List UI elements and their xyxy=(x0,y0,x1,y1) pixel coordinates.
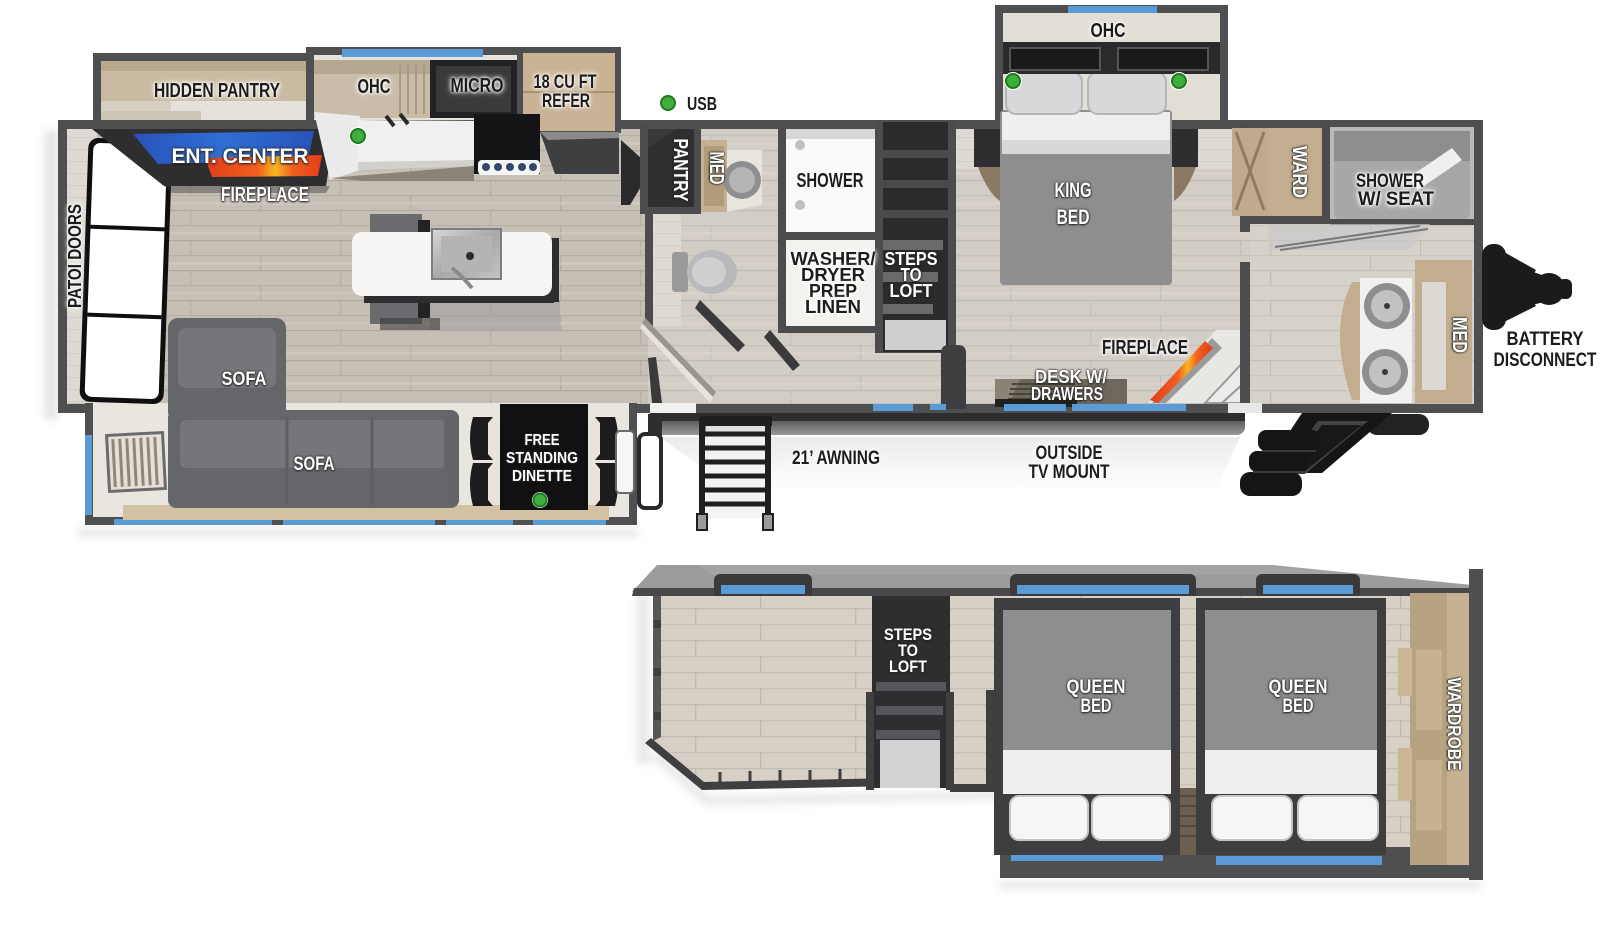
svg-text:BATTERY: BATTERY xyxy=(1507,329,1584,350)
svg-text:BED: BED xyxy=(1283,696,1314,717)
svg-text:FREE: FREE xyxy=(525,432,560,449)
svg-text:MED: MED xyxy=(1448,317,1470,353)
svg-text:W/ SEAT: W/ SEAT xyxy=(1358,189,1434,210)
svg-text:OHC: OHC xyxy=(1091,20,1126,42)
svg-text:QUEEN: QUEEN xyxy=(1269,677,1328,698)
svg-text:18 CU FT: 18 CU FT xyxy=(534,72,597,93)
svg-text:SHOWER: SHOWER xyxy=(797,170,864,192)
svg-text:LOFT: LOFT xyxy=(890,281,933,301)
svg-text:BED: BED xyxy=(1057,206,1090,229)
svg-text:PANTRY: PANTRY xyxy=(669,139,691,203)
svg-text:STANDING: STANDING xyxy=(506,450,578,467)
svg-text:USB: USB xyxy=(687,94,717,114)
svg-text:ENT. CENTER: ENT. CENTER xyxy=(172,145,309,168)
svg-text:DINETTE: DINETTE xyxy=(512,468,572,485)
svg-text:PATOI DOORS: PATOI DOORS xyxy=(65,204,85,308)
svg-text:LOFT: LOFT xyxy=(889,657,928,676)
svg-text:QUEEN: QUEEN xyxy=(1067,677,1126,698)
svg-text:WARDROBE: WARDROBE xyxy=(1444,678,1464,771)
svg-text:SOFA: SOFA xyxy=(222,369,267,390)
svg-text:DRAWERS: DRAWERS xyxy=(1031,384,1103,404)
svg-text:BED: BED xyxy=(1081,696,1112,717)
svg-text:MED: MED xyxy=(705,152,727,185)
svg-text:REFER: REFER xyxy=(542,91,590,112)
svg-text:SOFA: SOFA xyxy=(294,454,335,475)
svg-text:TV MOUNT: TV MOUNT xyxy=(1029,462,1110,483)
svg-text:HIDDEN PANTRY: HIDDEN PANTRY xyxy=(154,80,281,102)
svg-text:DISCONNECT: DISCONNECT xyxy=(1494,350,1597,371)
svg-text:OUTSIDE: OUTSIDE xyxy=(1036,443,1103,464)
svg-text:WARD: WARD xyxy=(1288,146,1310,198)
svg-text:FIREPLACE: FIREPLACE xyxy=(1102,337,1188,359)
svg-text:FIREPLACE: FIREPLACE xyxy=(221,184,309,206)
svg-text:OHC: OHC xyxy=(358,76,391,98)
svg-text:KING: KING xyxy=(1055,179,1092,202)
svg-text:21’ AWNING: 21’ AWNING xyxy=(792,448,880,469)
svg-text:LINEN: LINEN xyxy=(805,297,861,317)
svg-text:MICRO: MICRO xyxy=(451,75,504,97)
